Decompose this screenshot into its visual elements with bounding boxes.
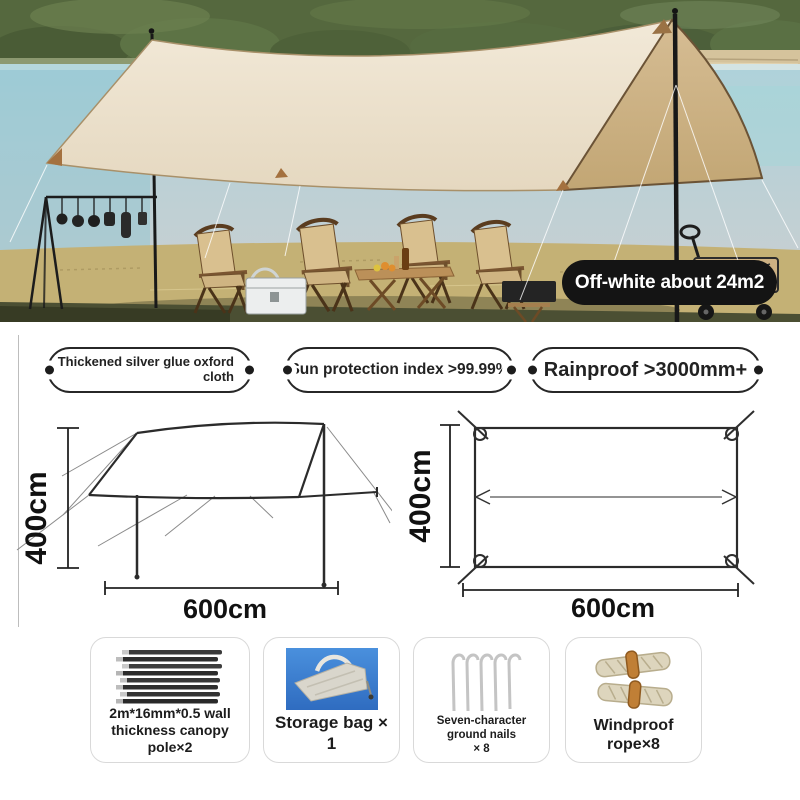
component-label: Windproof rope×8 — [571, 716, 696, 754]
feature-pill-label: Thickened silver glue oxford cloth — [49, 355, 250, 385]
top-view-width-label: 600cm — [571, 593, 655, 623]
component-card-poles: 2m*16mm*0.5 wall thickness canopy pole×2 — [90, 637, 250, 763]
feature-pill-rainproof: Rainproof >3000mm+ — [530, 347, 761, 393]
component-label: Storage bag × 1 — [269, 713, 394, 754]
feature-pill-label: Sun protection index >99.99% — [289, 361, 509, 379]
height-dimension — [57, 428, 79, 568]
feature-pill-label: Rainproof >3000mm+ — [544, 359, 747, 382]
component-card-rope: Windproof rope×8 — [565, 637, 702, 763]
feature-pill-fabric: Thickened silver glue oxford cloth — [47, 347, 252, 393]
canopy-poles-icon — [114, 647, 226, 705]
pill-dot-icon — [754, 366, 763, 375]
storage-bag-icon — [285, 647, 379, 711]
center-seam — [475, 490, 737, 504]
side-view-diagram: 400cm 600cm — [12, 405, 392, 627]
component-label: 2m*16mm*0.5 wall thickness canopy pole×2 — [109, 705, 230, 755]
pill-dot-icon — [45, 366, 54, 375]
pill-dot-icon — [528, 366, 537, 375]
width-dimension — [105, 581, 338, 595]
product-infographic: Off-white about 24m2 Thickened silver gl… — [0, 0, 800, 800]
pill-dot-icon — [507, 366, 516, 375]
component-label: Seven-character ground nails × 8 — [419, 715, 544, 756]
top-view-diagram: 400cm 600cm — [400, 405, 790, 627]
height-dimension — [440, 425, 460, 567]
top-view-height-label: 400cm — [404, 449, 437, 542]
tarp-line-art — [89, 423, 377, 587]
diagram-guy-lines — [17, 427, 392, 550]
hero-photo: Off-white about 24m2 — [0, 0, 800, 322]
component-card-storage-bag: Storage bag × 1 — [263, 637, 400, 763]
side-view-width-label: 600cm — [183, 594, 267, 624]
feature-pill-sun-protection: Sun protection index >99.99% — [285, 347, 514, 393]
pill-dot-icon — [283, 366, 292, 375]
pill-dot-icon — [245, 366, 254, 375]
ground-nails-icon — [437, 647, 527, 715]
color-size-badge: Off-white about 24m2 — [562, 260, 777, 305]
component-card-ground-nails: Seven-character ground nails × 8 — [413, 637, 550, 763]
side-view-height-label: 400cm — [20, 471, 53, 564]
windproof-rope-icon — [590, 647, 678, 713]
